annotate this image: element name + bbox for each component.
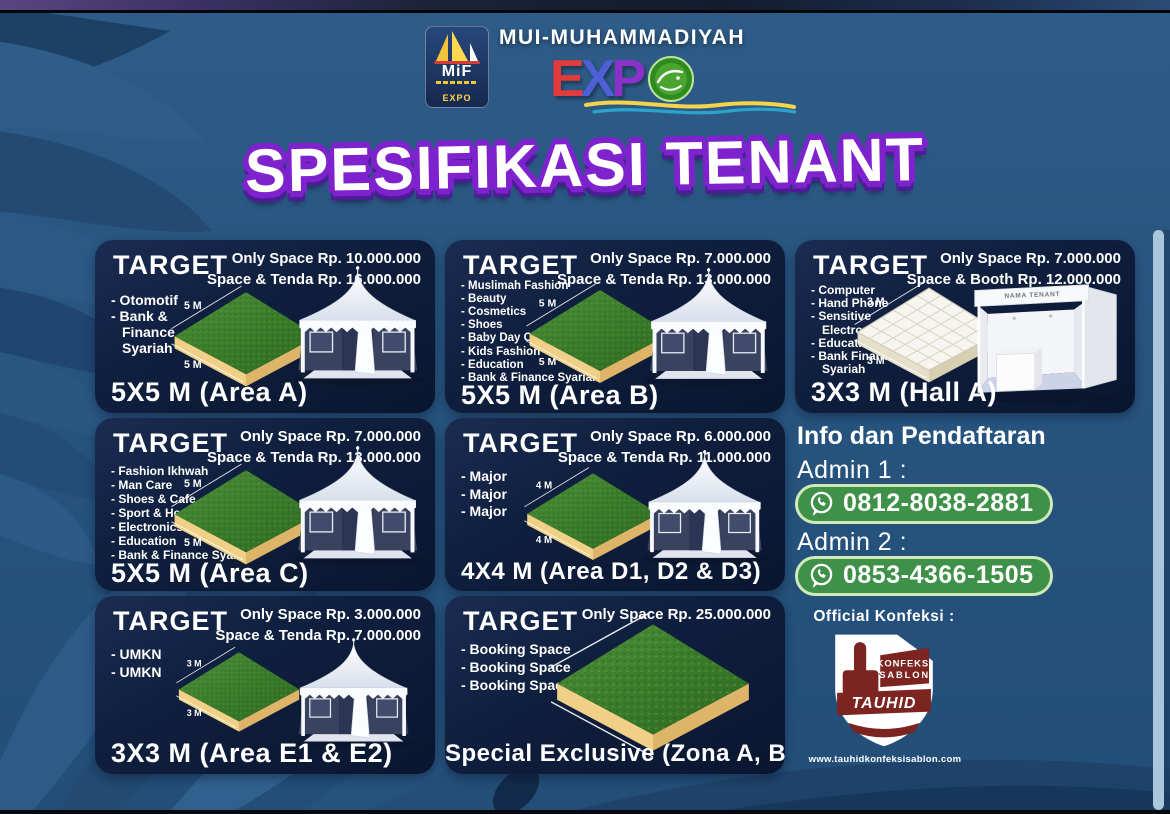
whatsapp-icon xyxy=(808,490,835,517)
svg-text:4 M: 4 M xyxy=(536,481,552,492)
svg-text:5 M: 5 M xyxy=(184,359,202,371)
svg-text:5 M: 5 M xyxy=(184,537,202,549)
mif-badge: MiF EXPO xyxy=(425,26,489,108)
whatsapp-pill[interactable]: 0812-8038-2881 xyxy=(795,484,1053,524)
top-strip-border xyxy=(0,10,1170,13)
brand-title: MUI-MUHAMMADIYAH xyxy=(499,26,745,50)
admin-label: Admin 1 : xyxy=(797,456,907,485)
mif-label: MiF xyxy=(426,63,488,81)
tenant-card: TARGET Only Space Rp. 10.000.000 Space &… xyxy=(95,240,435,413)
info-panel: Info dan Pendaftaran Admin 1 : 0812-8038… xyxy=(795,418,1135,591)
admin-label: Admin 2 : xyxy=(797,528,907,557)
price-line-1: Only Space Rp. 7.000.000 xyxy=(207,426,421,447)
info-heading: Info dan Pendaftaran xyxy=(797,422,1046,451)
scrollbar-thumb[interactable] xyxy=(1153,230,1164,810)
konfeksi-url: www.tauhidkonfeksisablon.com xyxy=(795,754,975,765)
konfeksi-panel: Official Konfeksi : KONFEKSI SABLON TAUH… xyxy=(795,596,1135,774)
platform-illustration xyxy=(551,608,755,761)
tenant-card: TARGET Only Space Rp. 7.000.000 Space & … xyxy=(95,418,435,591)
top-window-strip xyxy=(0,0,1170,10)
svg-text:3 M: 3 M xyxy=(187,658,202,668)
logo-waves-icon xyxy=(584,97,796,117)
mif-expo-label: EXPO xyxy=(426,93,488,103)
tenant-card: TARGET Only Space Rp. 7.000.000 Space & … xyxy=(795,240,1135,413)
size-label: 5X5 M (Area C) xyxy=(111,558,309,589)
size-label: 3X3 M (Hall A) xyxy=(811,377,997,408)
svg-text:SABLON: SABLON xyxy=(879,670,930,680)
tenant-card: TARGET Only Space Rp. 7.000.000 Space & … xyxy=(445,240,785,413)
price-line-1: Only Space Rp. 7.000.000 xyxy=(557,248,771,269)
phone-number: 0853-4366-1505 xyxy=(843,561,1034,590)
whatsapp-icon xyxy=(808,562,835,589)
svg-text:3 M: 3 M xyxy=(867,355,885,367)
svg-text:3 M: 3 M xyxy=(867,296,885,308)
size-label: 5X5 M (Area B) xyxy=(461,380,659,411)
svg-text:5 M: 5 M xyxy=(539,356,557,368)
expo-wordmark: E X P xyxy=(550,50,694,108)
svg-text:TAUHID: TAUHID xyxy=(852,695,917,712)
tenant-card: TARGET Only Space Rp. 25.000.000 - Booki… xyxy=(445,596,785,774)
sailboat-icon xyxy=(426,29,488,65)
svg-text:3 M: 3 M xyxy=(187,708,202,718)
tauhid-logo: KONFEKSI SABLON TAUHID xyxy=(823,629,945,751)
svg-text:5 M: 5 M xyxy=(539,298,557,310)
mif-tagline-decor xyxy=(436,81,478,84)
price-line-1: Only Space Rp. 7.000.000 xyxy=(907,248,1121,269)
phone-number: 0812-8038-2881 xyxy=(843,489,1034,518)
target-heading: TARGET xyxy=(113,606,228,637)
price-line-1: Only Space Rp. 6.000.000 xyxy=(558,426,771,447)
svg-text:4 M: 4 M xyxy=(536,535,552,546)
expo-o-logo xyxy=(648,56,694,102)
size-label: 5X5 M (Area A) xyxy=(111,377,308,408)
tent-illustration xyxy=(283,638,423,751)
tent-illustration xyxy=(631,450,777,567)
cards-grid: Info dan Pendaftaran Admin 1 : 0812-8038… xyxy=(95,240,1135,774)
scrollbar-track xyxy=(1163,230,1170,810)
bottom-edge xyxy=(0,810,1170,814)
size-label: Special Exclusive (Zona A, B & C) xyxy=(445,740,785,768)
tenant-card: TARGET Only Space Rp. 3.000.000 Space & … xyxy=(95,596,435,774)
tent-illustration xyxy=(633,268,783,389)
svg-text:5 M: 5 M xyxy=(184,478,202,490)
tenant-card: TARGET Only Space Rp. 6.000.000 Space & … xyxy=(445,418,785,591)
tent-illustration xyxy=(281,446,433,568)
price-line-1: Only Space Rp. 3.000.000 xyxy=(215,604,421,625)
size-label: 3X3 M (Area E1 & E2) xyxy=(111,738,393,769)
size-label: 4X4 M (Area D1, D2 & D3) xyxy=(461,558,761,586)
poster-screenshot: MiF EXPO MUI-MUHAMMADIYAH E X P xyxy=(0,0,1170,814)
svg-text:5 M: 5 M xyxy=(184,300,202,312)
whatsapp-pill[interactable]: 0853-4366-1505 xyxy=(795,556,1053,596)
svg-text:KONFEKSI: KONFEKSI xyxy=(877,659,933,669)
expo-letter-e: E xyxy=(550,53,583,105)
konfeksi-heading: Official Konfeksi : xyxy=(811,608,957,626)
tent-illustration xyxy=(281,266,433,388)
header-logo: MiF EXPO MUI-MUHAMMADIYAH E X P xyxy=(0,26,1170,108)
